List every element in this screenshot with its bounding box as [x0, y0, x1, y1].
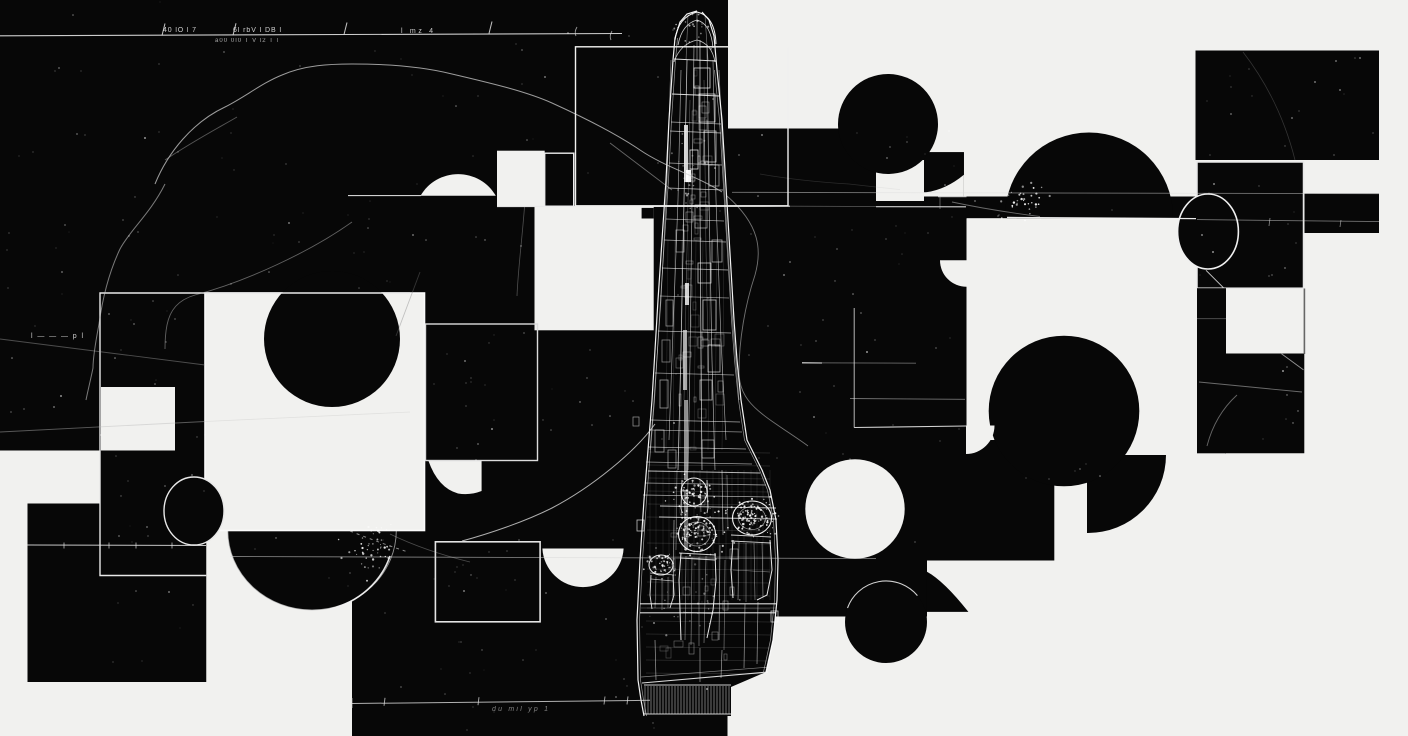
- svg-text:du mil yp 1: du mil yp 1: [492, 706, 548, 713]
- svg-text:a00 0l0 T V l2 T l: a00 0l0 T V l2 T l: [215, 38, 278, 44]
- svg-text:40 lO l 7: 40 lO l 7: [163, 27, 196, 34]
- svg-text:6l rbV l DB l: 6l rbV l DB l: [233, 27, 281, 34]
